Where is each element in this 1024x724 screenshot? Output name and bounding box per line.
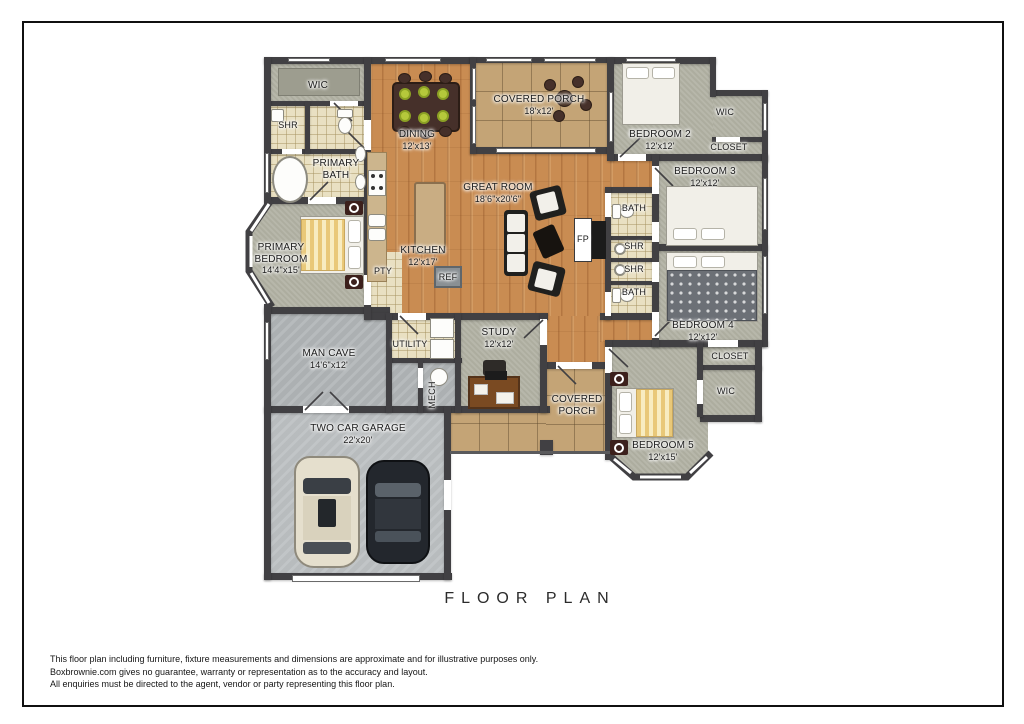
window (763, 103, 767, 131)
dining-label: DINING12'x13' (379, 128, 455, 152)
sedan-windshield (375, 483, 421, 497)
shr-lower-label: SHR (613, 264, 655, 275)
desk-papers (474, 384, 488, 395)
fridge-label: REF (434, 271, 462, 283)
place-setting (418, 86, 430, 98)
door-opening (605, 193, 611, 217)
window (385, 58, 441, 62)
disclaimer-line-3: All enquiries must be directed to the ag… (50, 678, 670, 691)
bath-lower-label: BATH (613, 287, 655, 298)
burner (379, 186, 383, 190)
door-opening (556, 362, 592, 369)
primary-bath-label: PRIMARY BATH (305, 156, 367, 184)
bedroom3-label: BEDROOM 312'x12' (656, 164, 754, 190)
pillow (652, 67, 675, 79)
door-opening (282, 149, 302, 154)
place-setting (437, 110, 449, 122)
bedroom5-label: BEDROOM 512'x15' (615, 438, 711, 464)
porch-walkway-floor (450, 413, 546, 453)
covered-porch-top-label: COVERED PORCH18'x12' (474, 92, 604, 118)
bistro-chair (572, 76, 584, 88)
nightstand (345, 275, 363, 289)
burner (379, 174, 383, 178)
door-opening (364, 120, 371, 150)
garage-door (292, 575, 420, 582)
primary-bedroom-label: PRIMARY BEDROOM14'4"x15' (244, 236, 318, 282)
toilet-bowl (338, 117, 352, 134)
nightstand (345, 201, 363, 215)
dining-chair (419, 71, 432, 82)
bedroom4-label: BEDROOM 412'x12' (654, 318, 752, 344)
bath-upper-label: BATH (613, 203, 655, 214)
window (486, 58, 532, 62)
desk-papers (496, 392, 514, 404)
kitchen-sink (368, 228, 386, 241)
garage-label: TWO CAR GARAGE22'x20' (300, 421, 416, 447)
disclaimer-line-1: This floor plan including furniture, fix… (50, 653, 670, 666)
pillow (626, 67, 649, 79)
wic-top-label: WIC (270, 80, 366, 92)
door-opening (418, 368, 423, 388)
pillow (701, 228, 725, 240)
kitchen-label: KITCHEN12'x17' (384, 244, 462, 268)
burner (371, 174, 375, 178)
door-opening (398, 313, 426, 320)
pantry-label: PTY (366, 266, 400, 277)
closet-bottom-right-label: CLOSET (702, 351, 758, 362)
closet-top-right-label: CLOSET (703, 142, 755, 153)
sofa-cushion (507, 214, 525, 232)
pillow (348, 220, 361, 243)
wic-bottom-right-label: WIC (703, 386, 749, 397)
wall (700, 415, 762, 422)
shr-upper-label: SHR (613, 241, 655, 252)
shr-top-label: SHR (267, 120, 309, 131)
suv-rear-window (303, 542, 351, 554)
wall (712, 90, 768, 96)
plan-title: FLOOR PLAN (420, 590, 640, 608)
pillow (701, 256, 725, 268)
suv-sunroof (318, 499, 336, 527)
window (544, 58, 596, 62)
place-setting (437, 88, 449, 100)
burner (371, 186, 375, 190)
door-opening (540, 319, 547, 345)
man-cave-label: MAN CAVE14'6"x12' (280, 346, 378, 372)
mech-floor (389, 360, 457, 408)
bedroom4-duvet (667, 270, 757, 321)
window (763, 256, 767, 314)
mech-label: MECH (426, 371, 438, 419)
disclaimer-text: This floor plan including furniture, fix… (50, 653, 670, 691)
pillow (673, 228, 697, 240)
great-room-label: GREAT ROOM18'6"x20'6" (440, 180, 556, 206)
place-setting (418, 112, 430, 124)
sedan-rear-window (375, 531, 421, 542)
wall (710, 57, 716, 97)
sofa-cushion (507, 254, 525, 272)
dining-chair (398, 73, 411, 84)
hall-east-floor (600, 318, 656, 342)
walkway-edge (450, 451, 610, 454)
bedroom5-bed-duvet (636, 389, 673, 437)
fireplace-insert (592, 221, 606, 259)
wall (607, 281, 657, 285)
wic-top-right-label: WIC (702, 106, 748, 118)
covered-porch-bottom-label: COVERED PORCH (546, 392, 608, 420)
door-opening (605, 292, 611, 316)
disclaimer-line-2: Boxbrownie.com gives no guarantee, warra… (50, 666, 670, 679)
nightstand (610, 372, 628, 386)
fireplace-label: FP (573, 233, 593, 245)
sliding-door (496, 148, 596, 153)
bathtub (272, 156, 308, 203)
pillow (673, 256, 697, 268)
window (265, 322, 269, 360)
door-opening (308, 197, 336, 204)
sofa-cushion (507, 234, 525, 252)
dining-chair (439, 73, 452, 84)
wall (386, 313, 392, 413)
pillow (619, 392, 632, 412)
place-setting (399, 88, 411, 100)
kitchen-sink (368, 214, 386, 227)
wall (607, 236, 657, 240)
door-opening (444, 480, 451, 510)
bedroom2-label: BEDROOM 212'x12' (612, 127, 708, 153)
window (626, 58, 676, 62)
window (265, 153, 269, 193)
door-opening (618, 154, 646, 161)
door-opening (652, 222, 659, 242)
door-opening (303, 406, 349, 413)
wall (700, 365, 762, 370)
window (763, 178, 767, 230)
utility-label: UTILITY (376, 339, 444, 350)
pillow (619, 414, 632, 434)
door-opening (605, 347, 612, 373)
wall (605, 187, 657, 193)
door-opening (330, 101, 358, 106)
bistro-chair (544, 79, 556, 91)
window (288, 58, 330, 62)
floor-plan-page: WIC SHR PRIMARY BATH DINING12'x13' COVER… (0, 0, 1024, 724)
pillow (348, 246, 361, 269)
monitor (485, 371, 507, 380)
washer (430, 318, 454, 338)
suv-windshield (303, 478, 351, 494)
place-setting (399, 110, 411, 122)
sedan-roof (375, 499, 421, 529)
study-label: STUDY12'x12' (459, 326, 539, 350)
wall (607, 258, 657, 262)
